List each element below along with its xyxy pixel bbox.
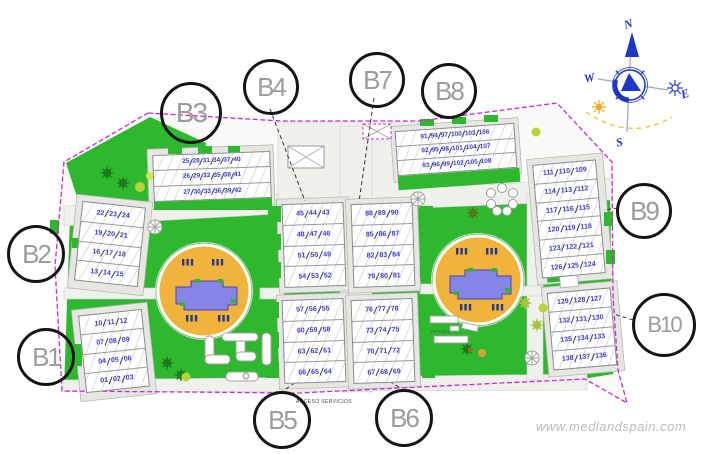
unit-number: 64 bbox=[323, 368, 333, 375]
unit-number: 43 bbox=[321, 210, 331, 217]
block-label-b1-text: B1 bbox=[32, 342, 60, 373]
unit-number: 120 bbox=[546, 226, 560, 234]
unit-row: 138137136 bbox=[553, 345, 616, 370]
unit-number: 41 bbox=[233, 172, 242, 179]
service-entrance-box bbox=[363, 124, 391, 139]
block-label-b2-text: B2 bbox=[22, 239, 50, 270]
block-label-b7-text: B7 bbox=[363, 65, 391, 96]
unit-row: 273033363942 bbox=[154, 182, 270, 201]
unit-row: 515049 bbox=[284, 243, 345, 266]
unit-number: 90 bbox=[390, 210, 400, 217]
pool-area-right bbox=[432, 234, 525, 327]
block-label-b6: B6 bbox=[375, 389, 433, 447]
unit-number: 121 bbox=[581, 242, 595, 250]
unit-number: 137 bbox=[577, 354, 591, 362]
building-b7: 888990858687828384798081 bbox=[351, 202, 416, 288]
unit-row: 126125124 bbox=[541, 253, 604, 277]
building-b6: 767778737475707172676869 bbox=[351, 298, 416, 384]
unit-row: 888990 bbox=[352, 203, 413, 225]
unit-number: 03 bbox=[124, 374, 134, 382]
unit-number: 124 bbox=[583, 260, 597, 268]
unit-number: 115 bbox=[577, 204, 591, 212]
unit-number: 122 bbox=[564, 243, 578, 251]
unit-number: 18 bbox=[116, 251, 126, 259]
unit-number: 61 bbox=[322, 347, 332, 354]
unit-number: 52 bbox=[323, 272, 333, 279]
compass-label-east: E bbox=[678, 86, 691, 102]
unit-number: 107 bbox=[478, 144, 491, 151]
building-b1: 101112070809040506010203 bbox=[78, 309, 150, 393]
block-label-b5-text: B5 bbox=[268, 405, 296, 436]
block-label-b5: B5 bbox=[253, 391, 311, 449]
unit-number: 113 bbox=[560, 187, 574, 195]
unit-number: 15 bbox=[114, 271, 124, 279]
block-label-b6-text: B6 bbox=[390, 403, 418, 434]
unit-number: 129 bbox=[556, 298, 570, 306]
unit-number: 12 bbox=[118, 317, 128, 325]
unit-number: 135 bbox=[559, 336, 573, 344]
compass-label-south: S bbox=[615, 135, 625, 150]
unit-row: 545352 bbox=[285, 264, 346, 287]
block-label-b8: B8 bbox=[421, 63, 477, 119]
unit-number: 42 bbox=[233, 188, 242, 195]
unit-row: 798081 bbox=[354, 264, 415, 287]
unit-row: 737475 bbox=[352, 319, 413, 342]
compass-north-arrow bbox=[625, 32, 639, 57]
unit-number: 131 bbox=[574, 315, 588, 323]
unit-row: 676869 bbox=[354, 360, 415, 383]
unit-number: 118 bbox=[579, 223, 593, 231]
unit-number: 09 bbox=[120, 336, 130, 344]
unit-number: 08 bbox=[108, 337, 118, 345]
utility-box bbox=[560, 275, 579, 288]
unit-number: 130 bbox=[591, 314, 605, 322]
unit-number: 106 bbox=[477, 129, 490, 136]
block-label-b7: B7 bbox=[349, 52, 405, 108]
unit-row: 484746 bbox=[283, 223, 344, 246]
petanque-label: PETANCA bbox=[431, 329, 451, 334]
unit-number: 07 bbox=[95, 339, 105, 347]
unit-number: 06 bbox=[122, 355, 132, 363]
block-label-b4: B4 bbox=[243, 59, 299, 115]
unit-number: 111 bbox=[542, 169, 555, 177]
unit-number: 127 bbox=[589, 295, 603, 303]
unit-number: 46 bbox=[321, 231, 331, 238]
unit-number: 69 bbox=[392, 368, 402, 375]
block-label-b3-text: B3 bbox=[176, 97, 206, 129]
unit-number: 136 bbox=[594, 352, 608, 360]
sun-icon-orange bbox=[592, 100, 606, 114]
block-label-b10-text: B10 bbox=[647, 312, 680, 338]
unit-number: 108 bbox=[480, 158, 493, 165]
unit-number: 87 bbox=[390, 231, 400, 238]
unit-number: 134 bbox=[576, 335, 590, 343]
compass-rose: N W E S bbox=[583, 16, 691, 150]
building-b9: 1111101091141131121171161151201191181231… bbox=[532, 159, 606, 278]
unit-row: 575655 bbox=[283, 299, 344, 321]
block-label-b3: B3 bbox=[160, 82, 222, 144]
unit-number: 132 bbox=[557, 317, 571, 325]
unit-row: 454443 bbox=[283, 203, 344, 225]
unit-number: 21 bbox=[119, 232, 129, 240]
unit-number: 109 bbox=[574, 167, 588, 175]
unit-number: 133 bbox=[592, 333, 606, 341]
unit-number: 55 bbox=[321, 306, 331, 313]
unit-number: 49 bbox=[322, 251, 332, 258]
unit-number: 123 bbox=[548, 244, 562, 252]
unit-number: 24 bbox=[121, 212, 131, 220]
unit-number: 103 bbox=[464, 130, 477, 137]
watermark: www.medlandspain.com bbox=[536, 419, 686, 434]
unit-number: 72 bbox=[391, 347, 401, 354]
unit-number: 125 bbox=[566, 262, 580, 270]
unit-number: 100 bbox=[450, 131, 463, 138]
compass-label-west: W bbox=[583, 69, 598, 85]
unit-row: 767778 bbox=[352, 299, 413, 321]
building-b4: 454443484746515049545352 bbox=[282, 202, 347, 288]
unit-number: 58 bbox=[321, 327, 331, 334]
gatehouse bbox=[288, 146, 324, 168]
unit-number: 84 bbox=[391, 251, 401, 258]
block-label-b9-text: B9 bbox=[630, 196, 658, 227]
unit-row: 858687 bbox=[352, 223, 413, 246]
building-b8: 9194971001031069295981011041079396991021… bbox=[395, 123, 518, 176]
unit-number: 128 bbox=[572, 296, 586, 304]
unit-number: 11 bbox=[106, 318, 116, 326]
block-label-b1: B1 bbox=[17, 328, 75, 386]
block-label-b9: B9 bbox=[616, 183, 672, 239]
block-label-b2: B2 bbox=[7, 225, 65, 283]
unit-row: 636261 bbox=[284, 339, 345, 362]
unit-row: 605958 bbox=[283, 319, 344, 342]
unit-row: 707172 bbox=[353, 339, 414, 362]
unit-number: 112 bbox=[576, 185, 590, 193]
building-b2: 222324192021161718131415 bbox=[74, 201, 146, 287]
block-label-b10: B10 bbox=[632, 293, 696, 357]
building-b10: 129128127132131130135134133138137136 bbox=[547, 287, 618, 370]
unit-row: 828384 bbox=[353, 243, 414, 266]
unit-number: 81 bbox=[392, 272, 402, 279]
block-label-b4-text: B4 bbox=[257, 72, 285, 103]
pool-area-left bbox=[156, 243, 253, 340]
unit-number: 119 bbox=[563, 224, 577, 232]
compass-label-north: N bbox=[621, 16, 635, 32]
building-b5: 575655605958636261666564 bbox=[282, 298, 347, 384]
unit-number: 75 bbox=[390, 327, 400, 334]
unit-number: 78 bbox=[390, 306, 400, 313]
sun-path-arc bbox=[586, 112, 672, 128]
building-b3: 252831343740262932353841273033363942 bbox=[152, 151, 272, 202]
block-label-b8-text: B8 bbox=[435, 76, 463, 107]
unit-number: 126 bbox=[549, 263, 563, 271]
unit-row: 666564 bbox=[285, 360, 346, 383]
site-plan: N W E S ACCESO SERVICIOS PETANCA 2528313… bbox=[0, 0, 705, 454]
unit-number: 116 bbox=[561, 206, 575, 214]
